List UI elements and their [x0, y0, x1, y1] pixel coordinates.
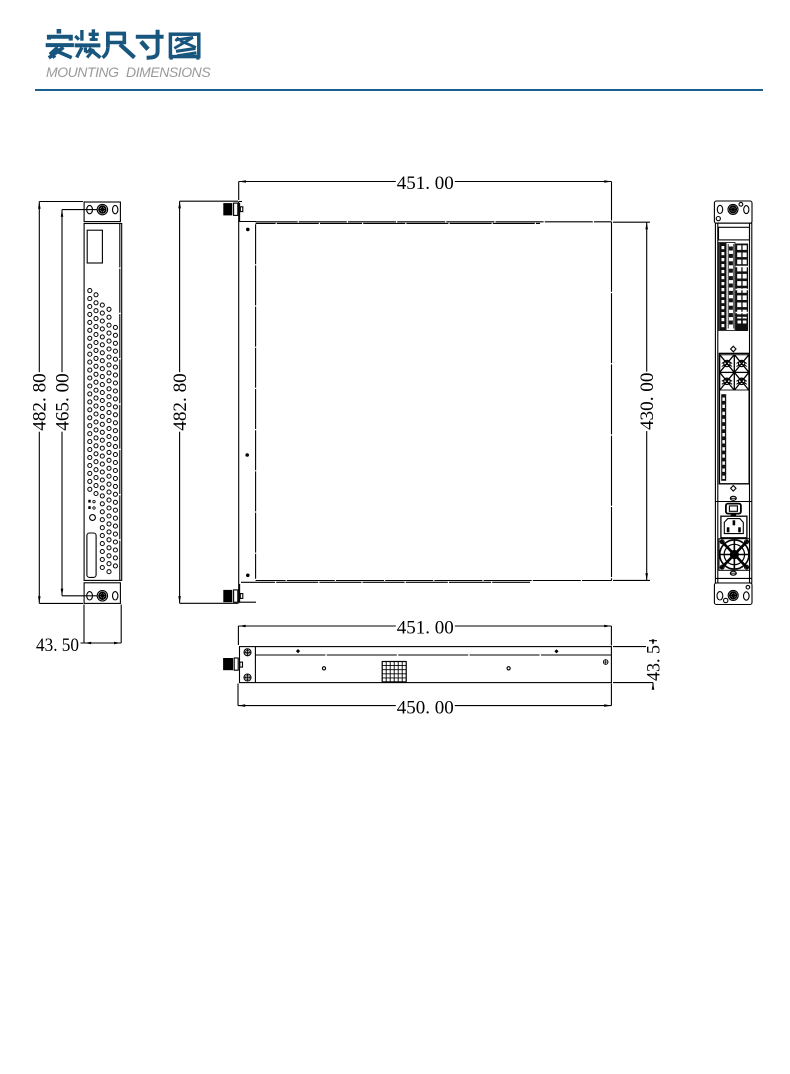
svg-text:43. 5: 43. 5 [643, 645, 664, 681]
svg-text:451. 00: 451. 00 [397, 173, 454, 194]
svg-text:482. 80: 482. 80 [30, 373, 51, 431]
svg-text:482. 80: 482. 80 [170, 373, 191, 431]
svg-text:430. 00: 430. 00 [637, 373, 658, 431]
svg-text:450. 00: 450. 00 [397, 697, 454, 718]
svg-text:465. 00: 465. 00 [52, 373, 73, 431]
svg-text:43. 50: 43. 50 [36, 635, 79, 656]
svg-text:451. 00: 451. 00 [397, 618, 454, 639]
